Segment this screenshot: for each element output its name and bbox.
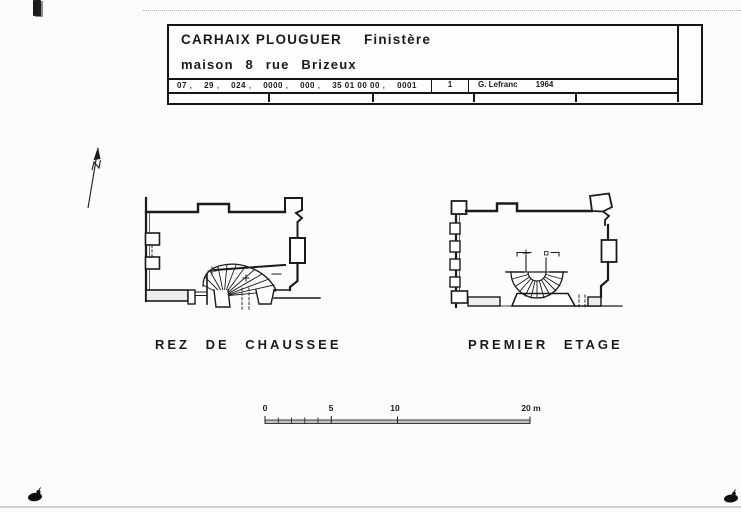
scale-bar: 0 5 10 20 m [250,403,550,431]
code-cell: 0001 [397,81,417,90]
grid-line-h2 [169,92,677,94]
scale-bar-graphic [250,416,550,430]
code-cell: 07 [177,81,192,90]
code-cell: 35 01 00 00 [332,81,385,90]
chimney-ground [290,238,305,263]
code-cell: 024 [231,81,251,90]
grid-line-r3c [473,93,475,102]
floor-plan-first [440,185,640,320]
drawing-year: 1964 [536,80,554,89]
scan-bottom-edge-line [0,506,741,508]
registration-mark-left [26,487,46,503]
grid-line-r3b [372,93,374,102]
author-cell: G. Lefranc1964 [469,78,677,92]
scale-tick-label-5: 5 [329,403,334,413]
scanned-drawing-sheet: CARHAIX PLOUGUERFinistère maison 8 rue B… [0,0,741,512]
scale-tick-label-0: 0 [263,403,268,413]
scale-tick-label-20m: 20 m [521,403,540,413]
film-punch-mark [33,0,41,16]
author-name: G. Lefranc [478,80,518,89]
title-block: CARHAIX PLOUGUERFinistère maison 8 rue B… [167,24,703,105]
grid-line-r3a [268,93,270,102]
classification-code-row: 07 29 024 0000 000 35 01 00 00 0001 [169,78,431,92]
code-cell: 0000 [263,81,288,90]
grid-line-right-col [677,26,679,102]
code-cell: 000 [300,81,320,90]
registration-mark-right [721,489,741,504]
sheet-number-cell: 1 [431,78,469,92]
code-cell: 29 [204,81,219,90]
floor-plan-ground [128,186,328,318]
plan-label-ground-floor: REZ DE CHAUSSEE [155,337,325,352]
title-line: CARHAIX PLOUGUERFinistère [181,32,431,47]
scale-tick-label-10: 10 [390,403,399,413]
departement-name: Finistère [364,32,431,47]
north-arrow-icon [78,140,108,212]
chimney-first [602,240,617,262]
spiral-stair-first [506,250,567,298]
subject-line: maison 8 rue Brizeux [181,57,357,72]
scan-dotted-edge-line [143,10,741,11]
plan-label-first-floor: PREMIER ETAGE [468,337,608,352]
commune-name: CARHAIX PLOUGUER [181,32,342,47]
grid-line-r3d [575,93,577,102]
